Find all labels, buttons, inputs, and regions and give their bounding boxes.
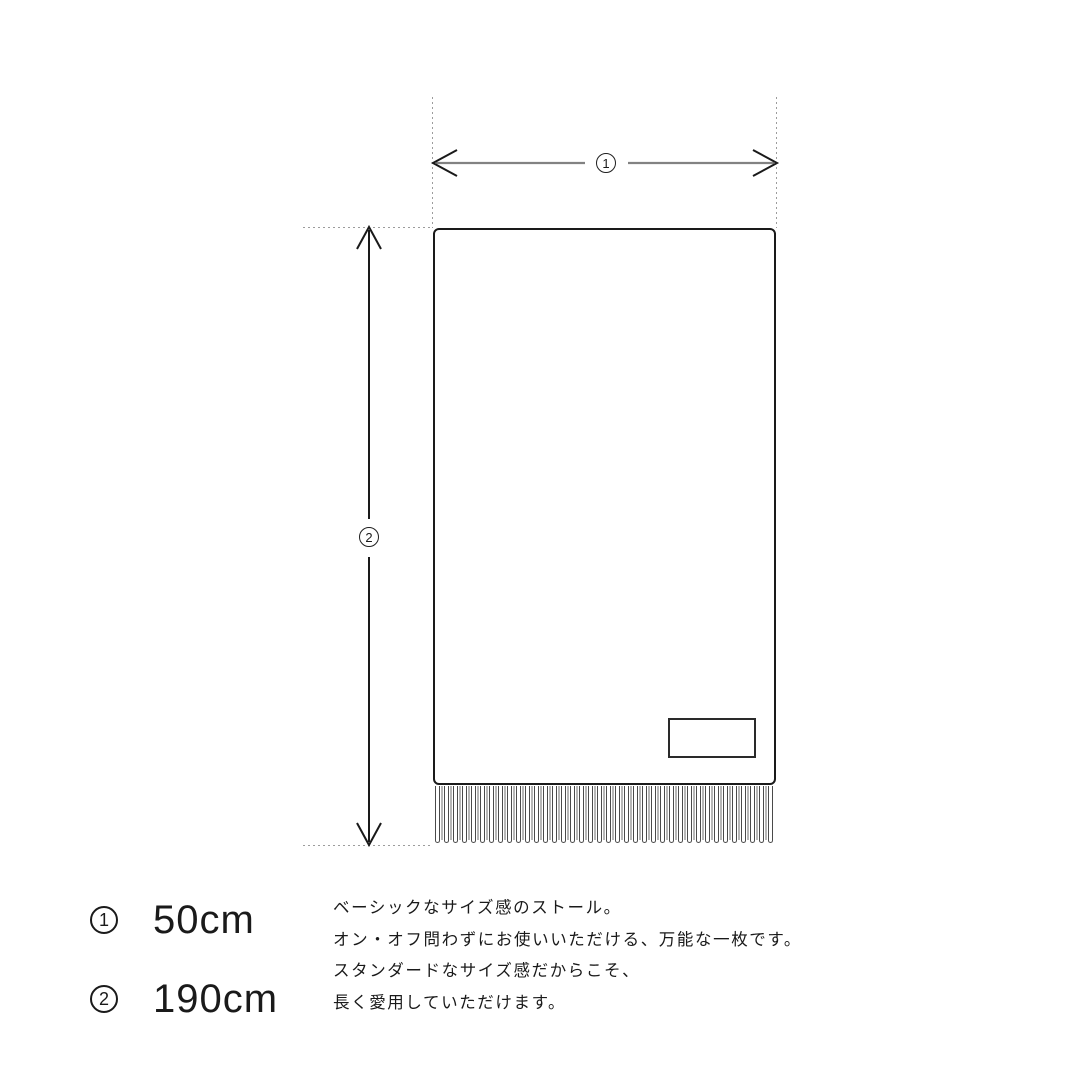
fringe-strand-gray <box>666 786 668 840</box>
fringe-strand <box>453 786 458 843</box>
width-measure-badge: 1 <box>596 153 616 173</box>
height-measure-badge: 2 <box>359 527 379 547</box>
fringe-strand-gray <box>522 786 524 840</box>
fringe-strand <box>750 786 755 843</box>
fringe-strand-gray <box>531 786 533 840</box>
fringe-strand <box>570 786 575 843</box>
fringe-strand-gray <box>720 786 722 840</box>
fringe-strand <box>669 786 674 843</box>
fringe-strand-gray <box>486 786 488 840</box>
fringe-strand-gray <box>450 786 452 840</box>
fringe-strand-gray <box>684 786 686 840</box>
fringe-strand-gray <box>603 786 605 840</box>
fringe-strand-gray <box>756 786 758 840</box>
fringe-strand <box>462 786 467 843</box>
fringe-strand-gray <box>441 786 443 840</box>
fringe-strand-gray <box>567 786 569 840</box>
fringe-strand <box>723 786 728 843</box>
fringe-strand-gray <box>612 786 614 840</box>
fringe-strand-gray <box>558 786 560 840</box>
fringe-strand-gray <box>639 786 641 840</box>
fringe-strand <box>660 786 665 843</box>
fringe-strand <box>606 786 611 843</box>
fringe-strand-gray <box>459 786 461 840</box>
fringe-strand <box>561 786 566 843</box>
fringe-strand <box>732 786 737 843</box>
fringe-strand <box>633 786 638 843</box>
description-line: ベーシックなサイズ感のストール。 <box>333 893 802 925</box>
fringe-strand-gray <box>675 786 677 840</box>
description-line: 長く愛用していただけます。 <box>333 988 802 1020</box>
legend-badge-height-number: 2 <box>99 990 109 1008</box>
fringe-strand <box>579 786 584 843</box>
fringe-strand-gray <box>693 786 695 840</box>
legend-badge-width-number: 1 <box>99 911 109 929</box>
fringe-strand <box>516 786 521 843</box>
fringe-strand-gray <box>540 786 542 840</box>
stole-outline <box>433 228 776 785</box>
fringe-strand-gray <box>711 786 713 840</box>
fringe-strand-gray <box>594 786 596 840</box>
fringe-strand-gray <box>747 786 749 840</box>
fringe-strand-gray <box>657 786 659 840</box>
fringe-strand <box>642 786 647 843</box>
fringe-strand <box>714 786 719 843</box>
fringe-strand <box>498 786 503 843</box>
fringe-strand <box>552 786 557 843</box>
fringe-strand <box>624 786 629 843</box>
fringe-strand-gray <box>621 786 623 840</box>
fringe-strand <box>507 786 512 843</box>
fringe-strand <box>705 786 710 843</box>
fringe-strand <box>615 786 620 843</box>
legend-badge-height: 2 <box>90 985 118 1013</box>
fringe-strand <box>768 786 773 843</box>
fringe-strand-gray <box>477 786 479 840</box>
fringe-strand <box>525 786 530 843</box>
fringe-strand-gray <box>495 786 497 840</box>
fringe-strand <box>534 786 539 843</box>
fringe-strand-gray <box>468 786 470 840</box>
fringe-strand-gray <box>576 786 578 840</box>
legend-value-width: 50cm <box>153 898 255 943</box>
fringe-strand <box>480 786 485 843</box>
brand-tag-outline <box>668 718 756 758</box>
description-line: オン・オフ問わずにお使いいただける、万能な一枚です。 <box>333 925 802 957</box>
fringe-strand-gray <box>549 786 551 840</box>
fringe-strand <box>471 786 476 843</box>
fringe-strand-gray <box>765 786 767 840</box>
fringe-strand-gray <box>648 786 650 840</box>
fringe-strand <box>543 786 548 843</box>
fringe-strand-gray <box>729 786 731 840</box>
fringe-strand-gray <box>513 786 515 840</box>
fringe-strand <box>489 786 494 843</box>
fringe-strand <box>444 786 449 843</box>
description-line: スタンダードなサイズ感だからこそ、 <box>333 956 802 988</box>
fringe-strand <box>435 786 440 843</box>
fringe-strand-gray <box>504 786 506 840</box>
fringe-strand-gray <box>630 786 632 840</box>
height-measure-number: 2 <box>365 531 372 544</box>
stole-fringe <box>435 786 774 844</box>
fringe-strand <box>651 786 656 843</box>
fringe-strand <box>741 786 746 843</box>
fringe-strand-gray <box>585 786 587 840</box>
fringe-strand <box>678 786 683 843</box>
fringe-strand <box>687 786 692 843</box>
fringe-strand-gray <box>702 786 704 840</box>
fringe-strand-gray <box>738 786 740 840</box>
legend-badge-width: 1 <box>90 906 118 934</box>
fringe-strand <box>696 786 701 843</box>
legend-value-height: 190cm <box>153 977 278 1022</box>
fringe-strand <box>759 786 764 843</box>
fringe-strand <box>597 786 602 843</box>
fringe-strand <box>588 786 593 843</box>
size-diagram-canvas: 1 2 1 50cm 2 190cm ベーシックなサイズ感のストール。 オン・オ… <box>0 0 1080 1080</box>
width-measure-number: 1 <box>602 157 609 170</box>
product-description: ベーシックなサイズ感のストール。 オン・オフ問わずにお使いいただける、万能な一枚… <box>333 893 802 1019</box>
